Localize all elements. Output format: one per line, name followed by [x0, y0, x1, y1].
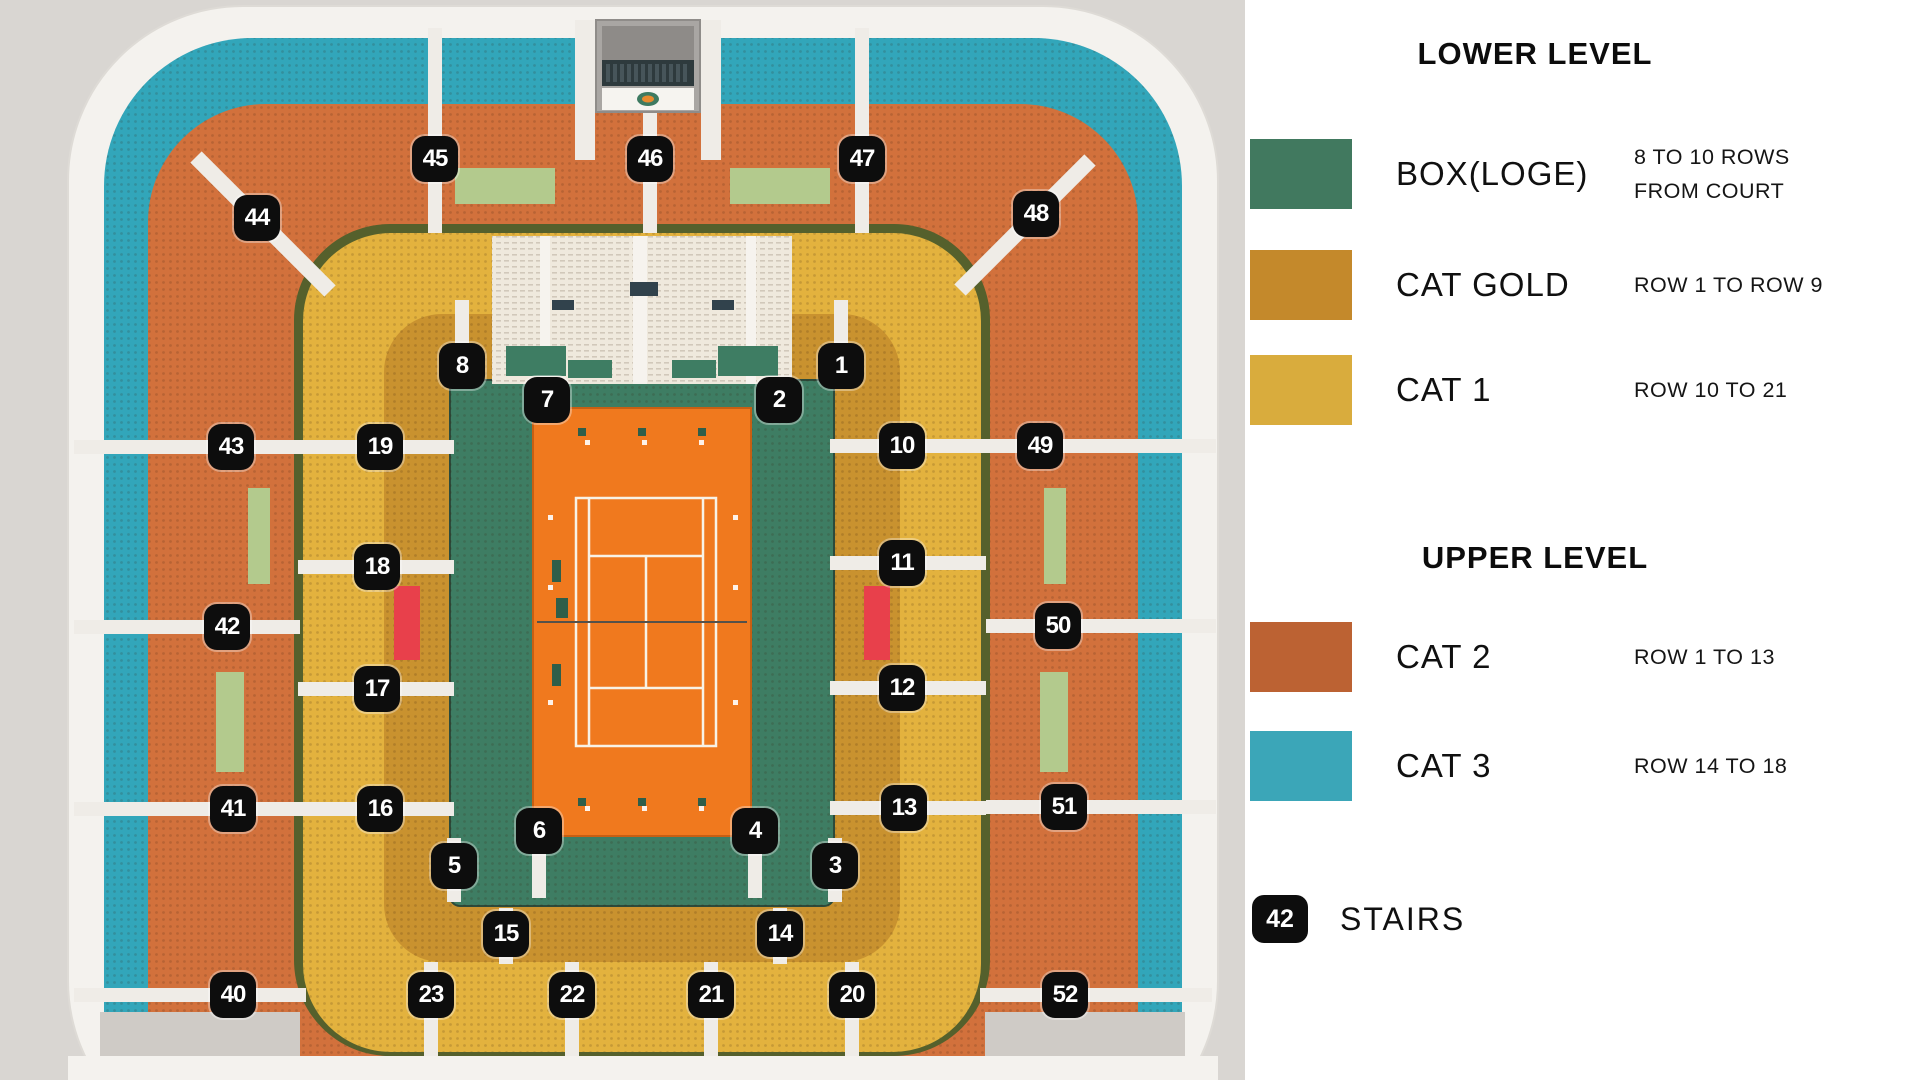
section-badge-46[interactable]: 46 — [627, 136, 673, 182]
cat3-note: ROW 14 TO 18 — [1634, 749, 1894, 783]
legend-row-stairs: 42 STAIRS — [1252, 895, 1465, 943]
section-badge-43[interactable]: 43 — [208, 424, 254, 470]
section-badges: 4546474448872143191049181142501712411664… — [0, 0, 1250, 1080]
section-badge-1[interactable]: 1 — [818, 343, 864, 389]
section-badge-21[interactable]: 21 — [688, 972, 734, 1018]
box-loge-note: 8 TO 10 ROWS FROM COURT — [1634, 140, 1894, 209]
section-badge-3[interactable]: 3 — [812, 843, 858, 889]
section-badge-10[interactable]: 10 — [879, 423, 925, 469]
section-badge-4[interactable]: 4 — [732, 808, 778, 854]
cat2-swatch — [1250, 622, 1352, 692]
upper-level-heading: UPPER LEVEL — [1305, 540, 1765, 576]
section-badge-42[interactable]: 42 — [204, 604, 250, 650]
box-loge-label: BOX(LOGE) — [1396, 155, 1634, 193]
cat2-label: CAT 2 — [1396, 638, 1634, 676]
section-badge-40[interactable]: 40 — [210, 972, 256, 1018]
cat1-swatch — [1250, 355, 1352, 425]
legend-panel: LOWER LEVEL BOX(LOGE) 8 TO 10 ROWS FROM … — [1245, 0, 1920, 1080]
cat-gold-note: ROW 1 TO ROW 9 — [1634, 268, 1894, 302]
section-badge-51[interactable]: 51 — [1041, 784, 1087, 830]
box-loge-swatch — [1250, 139, 1352, 209]
section-badge-11[interactable]: 11 — [879, 540, 925, 586]
section-badge-8[interactable]: 8 — [439, 343, 485, 389]
section-badge-6[interactable]: 6 — [516, 808, 562, 854]
stadium-map: 4546474448872143191049181142501712411664… — [0, 0, 1250, 1080]
section-badge-12[interactable]: 12 — [879, 665, 925, 711]
section-badge-17[interactable]: 17 — [354, 666, 400, 712]
cat2-note: ROW 1 TO 13 — [1634, 640, 1894, 674]
legend-row-box: BOX(LOGE) 8 TO 10 ROWS FROM COURT — [1250, 139, 1894, 209]
section-badge-7[interactable]: 7 — [524, 377, 570, 423]
section-badge-18[interactable]: 18 — [354, 544, 400, 590]
section-badge-20[interactable]: 20 — [829, 972, 875, 1018]
section-badge-41[interactable]: 41 — [210, 786, 256, 832]
cat1-label: CAT 1 — [1396, 371, 1634, 409]
legend-row-cat2: CAT 2 ROW 1 TO 13 — [1250, 622, 1894, 692]
section-badge-47[interactable]: 47 — [839, 136, 885, 182]
cat3-swatch — [1250, 731, 1352, 801]
cat-gold-swatch — [1250, 250, 1352, 320]
lower-level-heading: LOWER LEVEL — [1305, 36, 1765, 72]
section-badge-19[interactable]: 19 — [357, 424, 403, 470]
legend-row-cat-gold: CAT GOLD ROW 1 TO ROW 9 — [1250, 250, 1894, 320]
section-badge-23[interactable]: 23 — [408, 972, 454, 1018]
cat3-label: CAT 3 — [1396, 747, 1634, 785]
cat-gold-label: CAT GOLD — [1396, 266, 1634, 304]
section-badge-22[interactable]: 22 — [549, 972, 595, 1018]
cat1-note: ROW 10 TO 21 — [1634, 373, 1894, 407]
section-badge-14[interactable]: 14 — [757, 911, 803, 957]
stairs-label: STAIRS — [1340, 901, 1465, 938]
seating-chart-page: 4546474448872143191049181142501712411664… — [0, 0, 1920, 1080]
section-badge-13[interactable]: 13 — [881, 785, 927, 831]
legend-row-cat1: CAT 1 ROW 10 TO 21 — [1250, 355, 1894, 425]
section-badge-16[interactable]: 16 — [357, 786, 403, 832]
legend-row-cat3: CAT 3 ROW 14 TO 18 — [1250, 731, 1894, 801]
section-badge-52[interactable]: 52 — [1042, 972, 1088, 1018]
section-badge-48[interactable]: 48 — [1013, 191, 1059, 237]
section-badge-2[interactable]: 2 — [756, 377, 802, 423]
section-badge-5[interactable]: 5 — [431, 843, 477, 889]
section-badge-44[interactable]: 44 — [234, 195, 280, 241]
stairs-badge-icon: 42 — [1252, 895, 1308, 943]
section-badge-50[interactable]: 50 — [1035, 603, 1081, 649]
section-badge-49[interactable]: 49 — [1017, 423, 1063, 469]
section-badge-15[interactable]: 15 — [483, 911, 529, 957]
section-badge-45[interactable]: 45 — [412, 136, 458, 182]
